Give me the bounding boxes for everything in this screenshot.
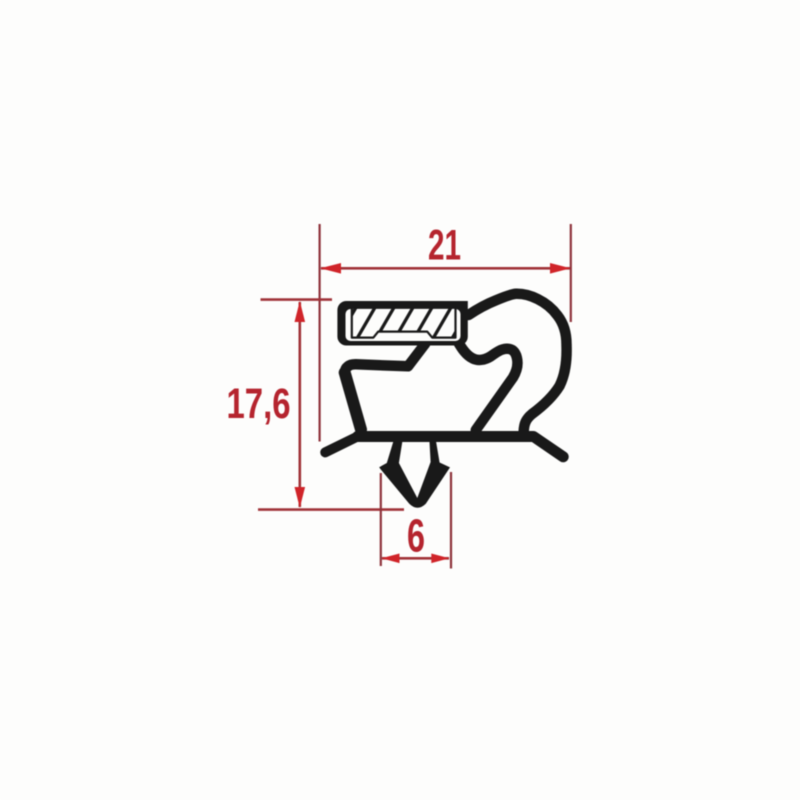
svg-text:21: 21 (428, 222, 461, 270)
svg-text:17,6: 17,6 (227, 380, 291, 428)
svg-text:6: 6 (407, 510, 425, 562)
